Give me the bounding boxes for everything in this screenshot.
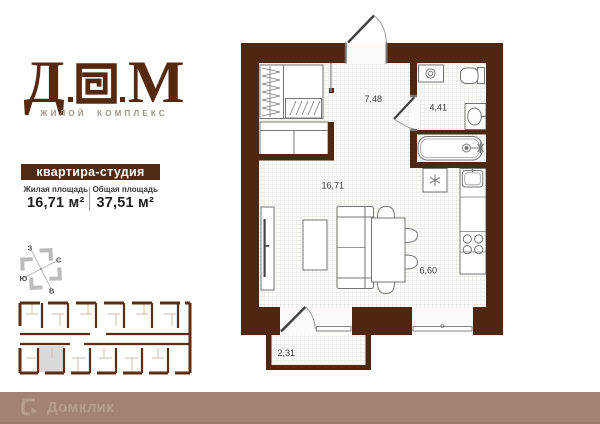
entrance-door [348,16,386,43]
bath-area-label: 4,41 [430,103,448,113]
tv-unit [261,207,274,290]
floor-plan: 7,48 4,41 16,71 6,60 2,31 [0,0,600,424]
footer-brand-name: Домклик [47,399,114,416]
toilet [461,68,485,84]
bathtub [418,137,484,161]
balcony-area-label: 2,31 [278,348,296,358]
fridge [423,169,447,193]
niche-partition-line [330,63,331,92]
window [412,307,473,335]
bathroom-sink [465,104,487,130]
hall-area-label: 7,48 [365,94,383,104]
sofa [337,207,374,289]
window [316,307,353,335]
kitchen-area-label: 6,60 [420,266,438,276]
footer-bar: Домклик [0,392,600,424]
domclick-house-icon [20,397,40,417]
entry-bench [260,122,328,155]
wardrobe [260,65,323,119]
coffee-table [303,220,327,270]
washing-machine [419,65,444,82]
living-room-area-label: 16,71 [322,181,345,191]
